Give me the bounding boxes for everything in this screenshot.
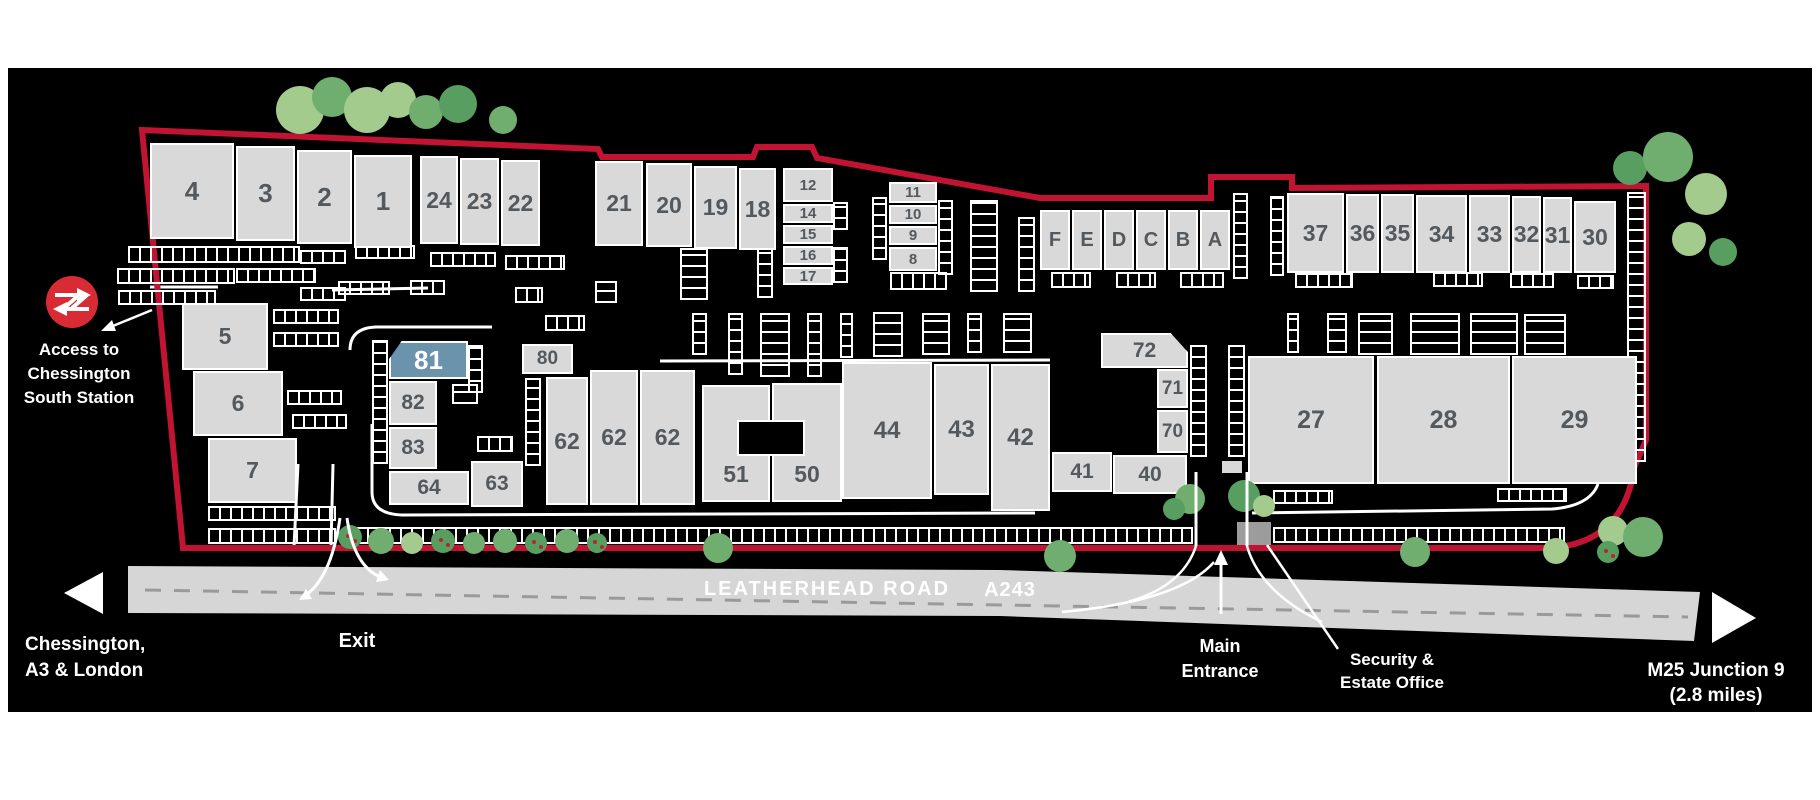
exit-arrow-icon [299, 518, 389, 600]
map-overlay [0, 0, 1820, 800]
national-rail-icon [46, 276, 98, 328]
estate-site-map: 4321242322212019181214151617111098FEDCBA… [0, 0, 1820, 800]
station-pointer-arrow [101, 310, 152, 331]
entrance-arrow-icon [1062, 472, 1322, 622]
security-pointer-line [1267, 545, 1338, 649]
